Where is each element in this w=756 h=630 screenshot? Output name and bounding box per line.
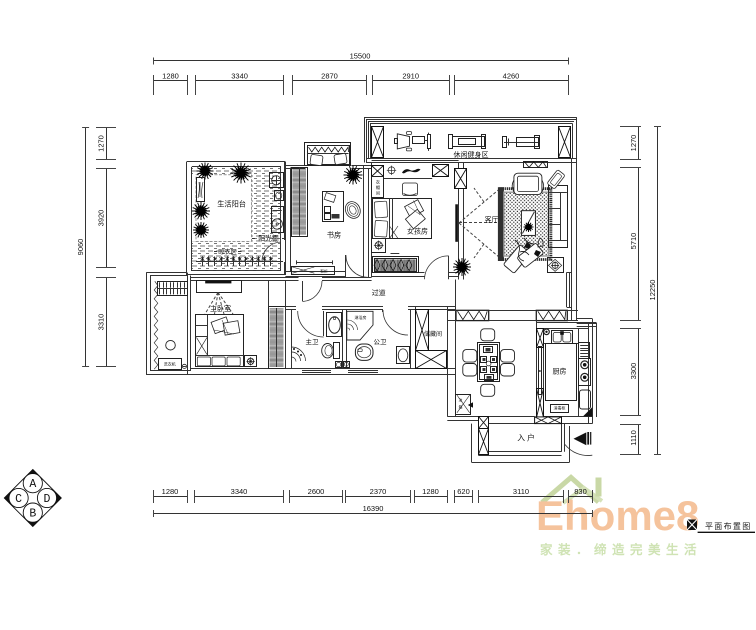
svg-text:2600: 2600 [308, 487, 325, 496]
svg-text:厨房: 厨房 [553, 367, 567, 376]
svg-text:淋浴房: 淋浴房 [355, 314, 367, 320]
svg-text:620: 620 [457, 487, 470, 496]
svg-text:3310: 3310 [97, 314, 106, 331]
svg-text:15500: 15500 [350, 52, 371, 61]
svg-text:5710: 5710 [629, 233, 638, 250]
svg-text:3340: 3340 [231, 72, 248, 81]
svg-text:1280: 1280 [162, 487, 179, 496]
svg-text:1280: 1280 [162, 72, 179, 81]
svg-text:2870: 2870 [321, 72, 338, 81]
svg-text:休闲健身区: 休闲健身区 [454, 150, 489, 159]
svg-text:鞋柜: 鞋柜 [320, 268, 328, 273]
svg-text:入户: 入户 [517, 433, 537, 443]
svg-text:生活阳台: 生活阳台 [217, 200, 246, 209]
svg-text:书房: 书房 [327, 231, 341, 240]
svg-text:晾衣区: 晾衣区 [218, 248, 237, 256]
svg-text:平面布置图: 平面布置图 [705, 521, 752, 531]
svg-text:12250: 12250 [648, 280, 657, 301]
svg-text:冰: 冰 [459, 398, 463, 403]
svg-text:Ehome8: Ehome8 [536, 492, 699, 539]
svg-text:阳光棚: 阳光棚 [258, 233, 279, 242]
svg-text:2910: 2910 [402, 72, 419, 81]
svg-text:D: D [44, 493, 51, 506]
svg-text:16390: 16390 [363, 504, 384, 513]
svg-text:客厅: 客厅 [485, 215, 499, 224]
svg-text:3300: 3300 [629, 363, 638, 380]
svg-text:1270: 1270 [629, 135, 638, 152]
svg-text:830: 830 [574, 487, 587, 496]
svg-text:间: 间 [376, 190, 380, 197]
svg-text:储藏间: 储藏间 [424, 330, 442, 338]
svg-text:主卫: 主卫 [306, 337, 320, 346]
svg-text:1110: 1110 [629, 430, 638, 446]
svg-text:C: C [15, 493, 22, 506]
svg-text:2370: 2370 [370, 487, 387, 496]
svg-text:箱: 箱 [459, 405, 463, 410]
svg-text:3340: 3340 [231, 487, 248, 496]
svg-text:A: A [29, 478, 36, 491]
svg-text:洗衣机: 洗衣机 [164, 361, 176, 367]
svg-text:过道: 过道 [372, 288, 386, 297]
svg-text:B: B [29, 508, 36, 521]
svg-text:3920: 3920 [97, 210, 106, 227]
svg-text:家装．缔造完美生活: 家装．缔造完美生活 [540, 542, 702, 557]
svg-text:女孩房: 女孩房 [407, 227, 428, 236]
svg-text:公卫: 公卫 [374, 338, 388, 346]
svg-text:4260: 4260 [503, 72, 520, 81]
svg-text:9060: 9060 [76, 239, 85, 256]
svg-text:3110: 3110 [513, 487, 529, 496]
svg-text:主卧室: 主卧室 [210, 304, 231, 313]
svg-text:消毒柜: 消毒柜 [554, 405, 566, 411]
svg-text:1280: 1280 [422, 487, 439, 496]
svg-text:1270: 1270 [97, 135, 106, 152]
